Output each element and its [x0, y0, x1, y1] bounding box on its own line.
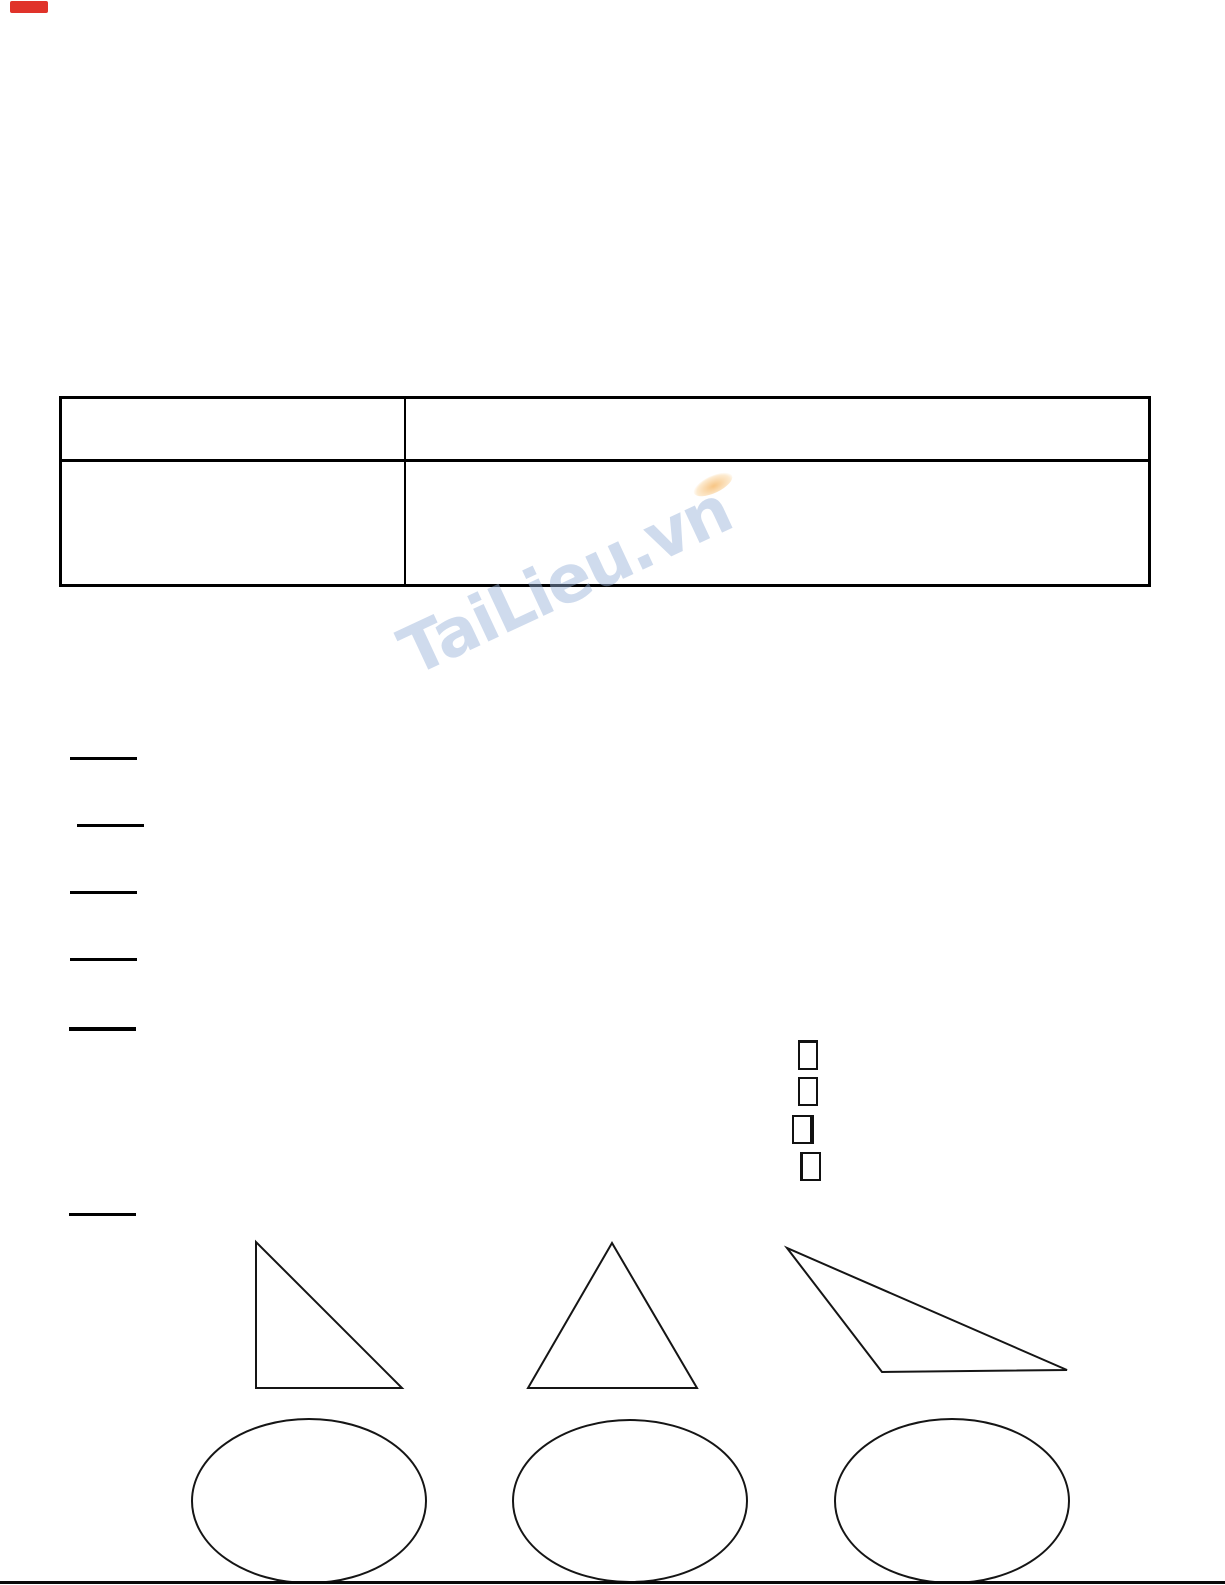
- isosceles-triangle: [528, 1243, 697, 1388]
- ellipse-middle: [513, 1420, 747, 1582]
- ellipse-right: [835, 1419, 1069, 1583]
- ellipse-left: [192, 1419, 426, 1583]
- figures-layer: [0, 0, 1225, 1585]
- document-page: TaiLieu.vn: [0, 0, 1225, 1585]
- obtuse-triangle: [787, 1248, 1067, 1372]
- right-triangle: [256, 1242, 402, 1388]
- page-bottom-rule: [0, 1581, 1225, 1584]
